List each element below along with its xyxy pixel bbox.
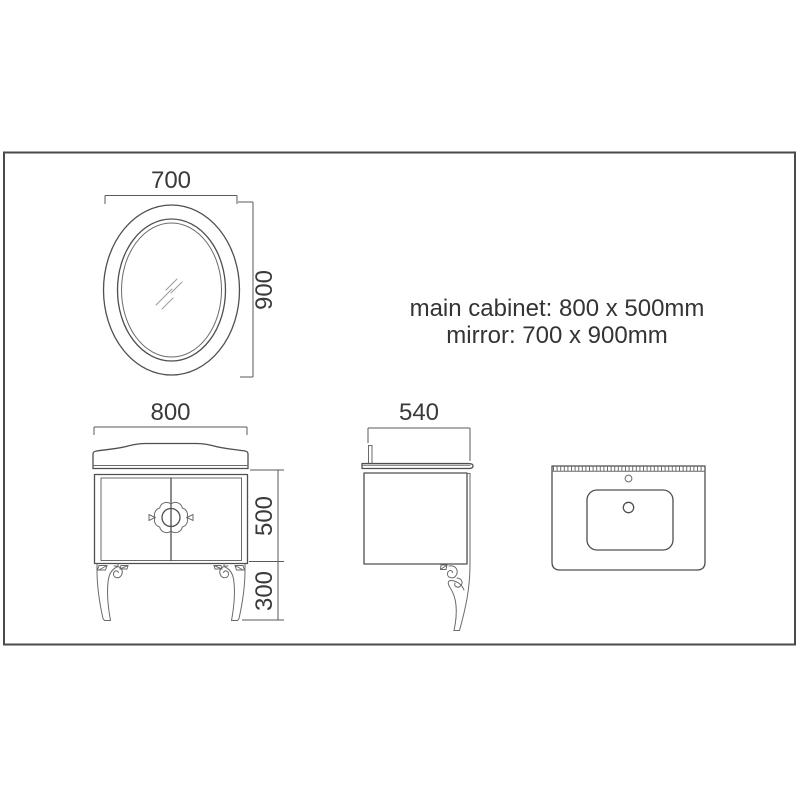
cabinet-width-label: 800 (150, 399, 190, 426)
spec-line-2: mirror: 700 x 900mm (446, 322, 667, 349)
mirror-width-dimension: 700 (105, 167, 237, 204)
cabinet-front-view (93, 444, 248, 621)
cabinet-depth-dimension: 540 (368, 399, 470, 461)
mirror-height-dimension: 900 (238, 202, 278, 377)
cabinet-body-height-label: 500 (251, 496, 278, 536)
technical-drawing: 700 900 (0, 0, 800, 800)
cabinet-width-dimension: 800 (94, 399, 247, 435)
mirror-height-label: 900 (251, 270, 278, 310)
front-left-leg (97, 564, 128, 621)
side-countertop (362, 464, 473, 469)
cabinet-depth-label: 540 (399, 399, 439, 426)
glass-reflection-marks (156, 279, 182, 309)
front-right-leg (214, 564, 245, 621)
basin-outline (587, 490, 673, 550)
drawing-canvas: 700 900 (0, 0, 800, 800)
spec-annotation: main cabinet: 800 x 500mm mirror: 700 x … (410, 295, 705, 349)
side-backsplash (369, 446, 373, 464)
sink-top-view (552, 466, 705, 570)
faucet-hole (625, 475, 632, 482)
countertop-profile (93, 444, 248, 469)
cabinet-body-height-dimension: 500 300 (242, 470, 284, 620)
side-leg (441, 564, 471, 631)
side-body-outline (364, 473, 467, 564)
cabinet-side-view (362, 446, 473, 631)
mirror-width-label: 700 (151, 167, 191, 194)
drain-hole (623, 502, 633, 512)
cabinet-leg-height-label: 300 (251, 571, 278, 611)
spec-line-1: main cabinet: 800 x 500mm (410, 295, 705, 322)
mirror-front-view (104, 205, 240, 375)
